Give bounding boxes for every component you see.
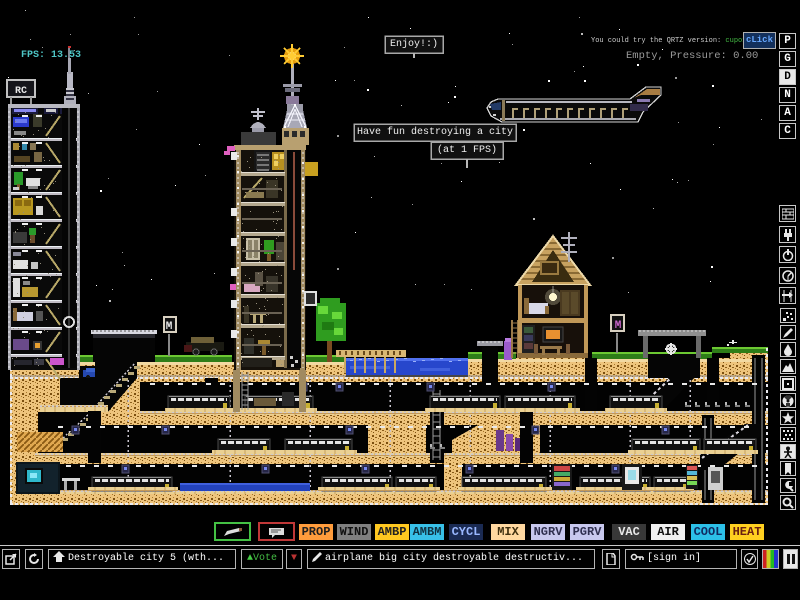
svg-text:RC: RC: [15, 86, 27, 97]
svg-text:M: M: [166, 321, 173, 333]
svg-text:M: M: [615, 320, 622, 332]
